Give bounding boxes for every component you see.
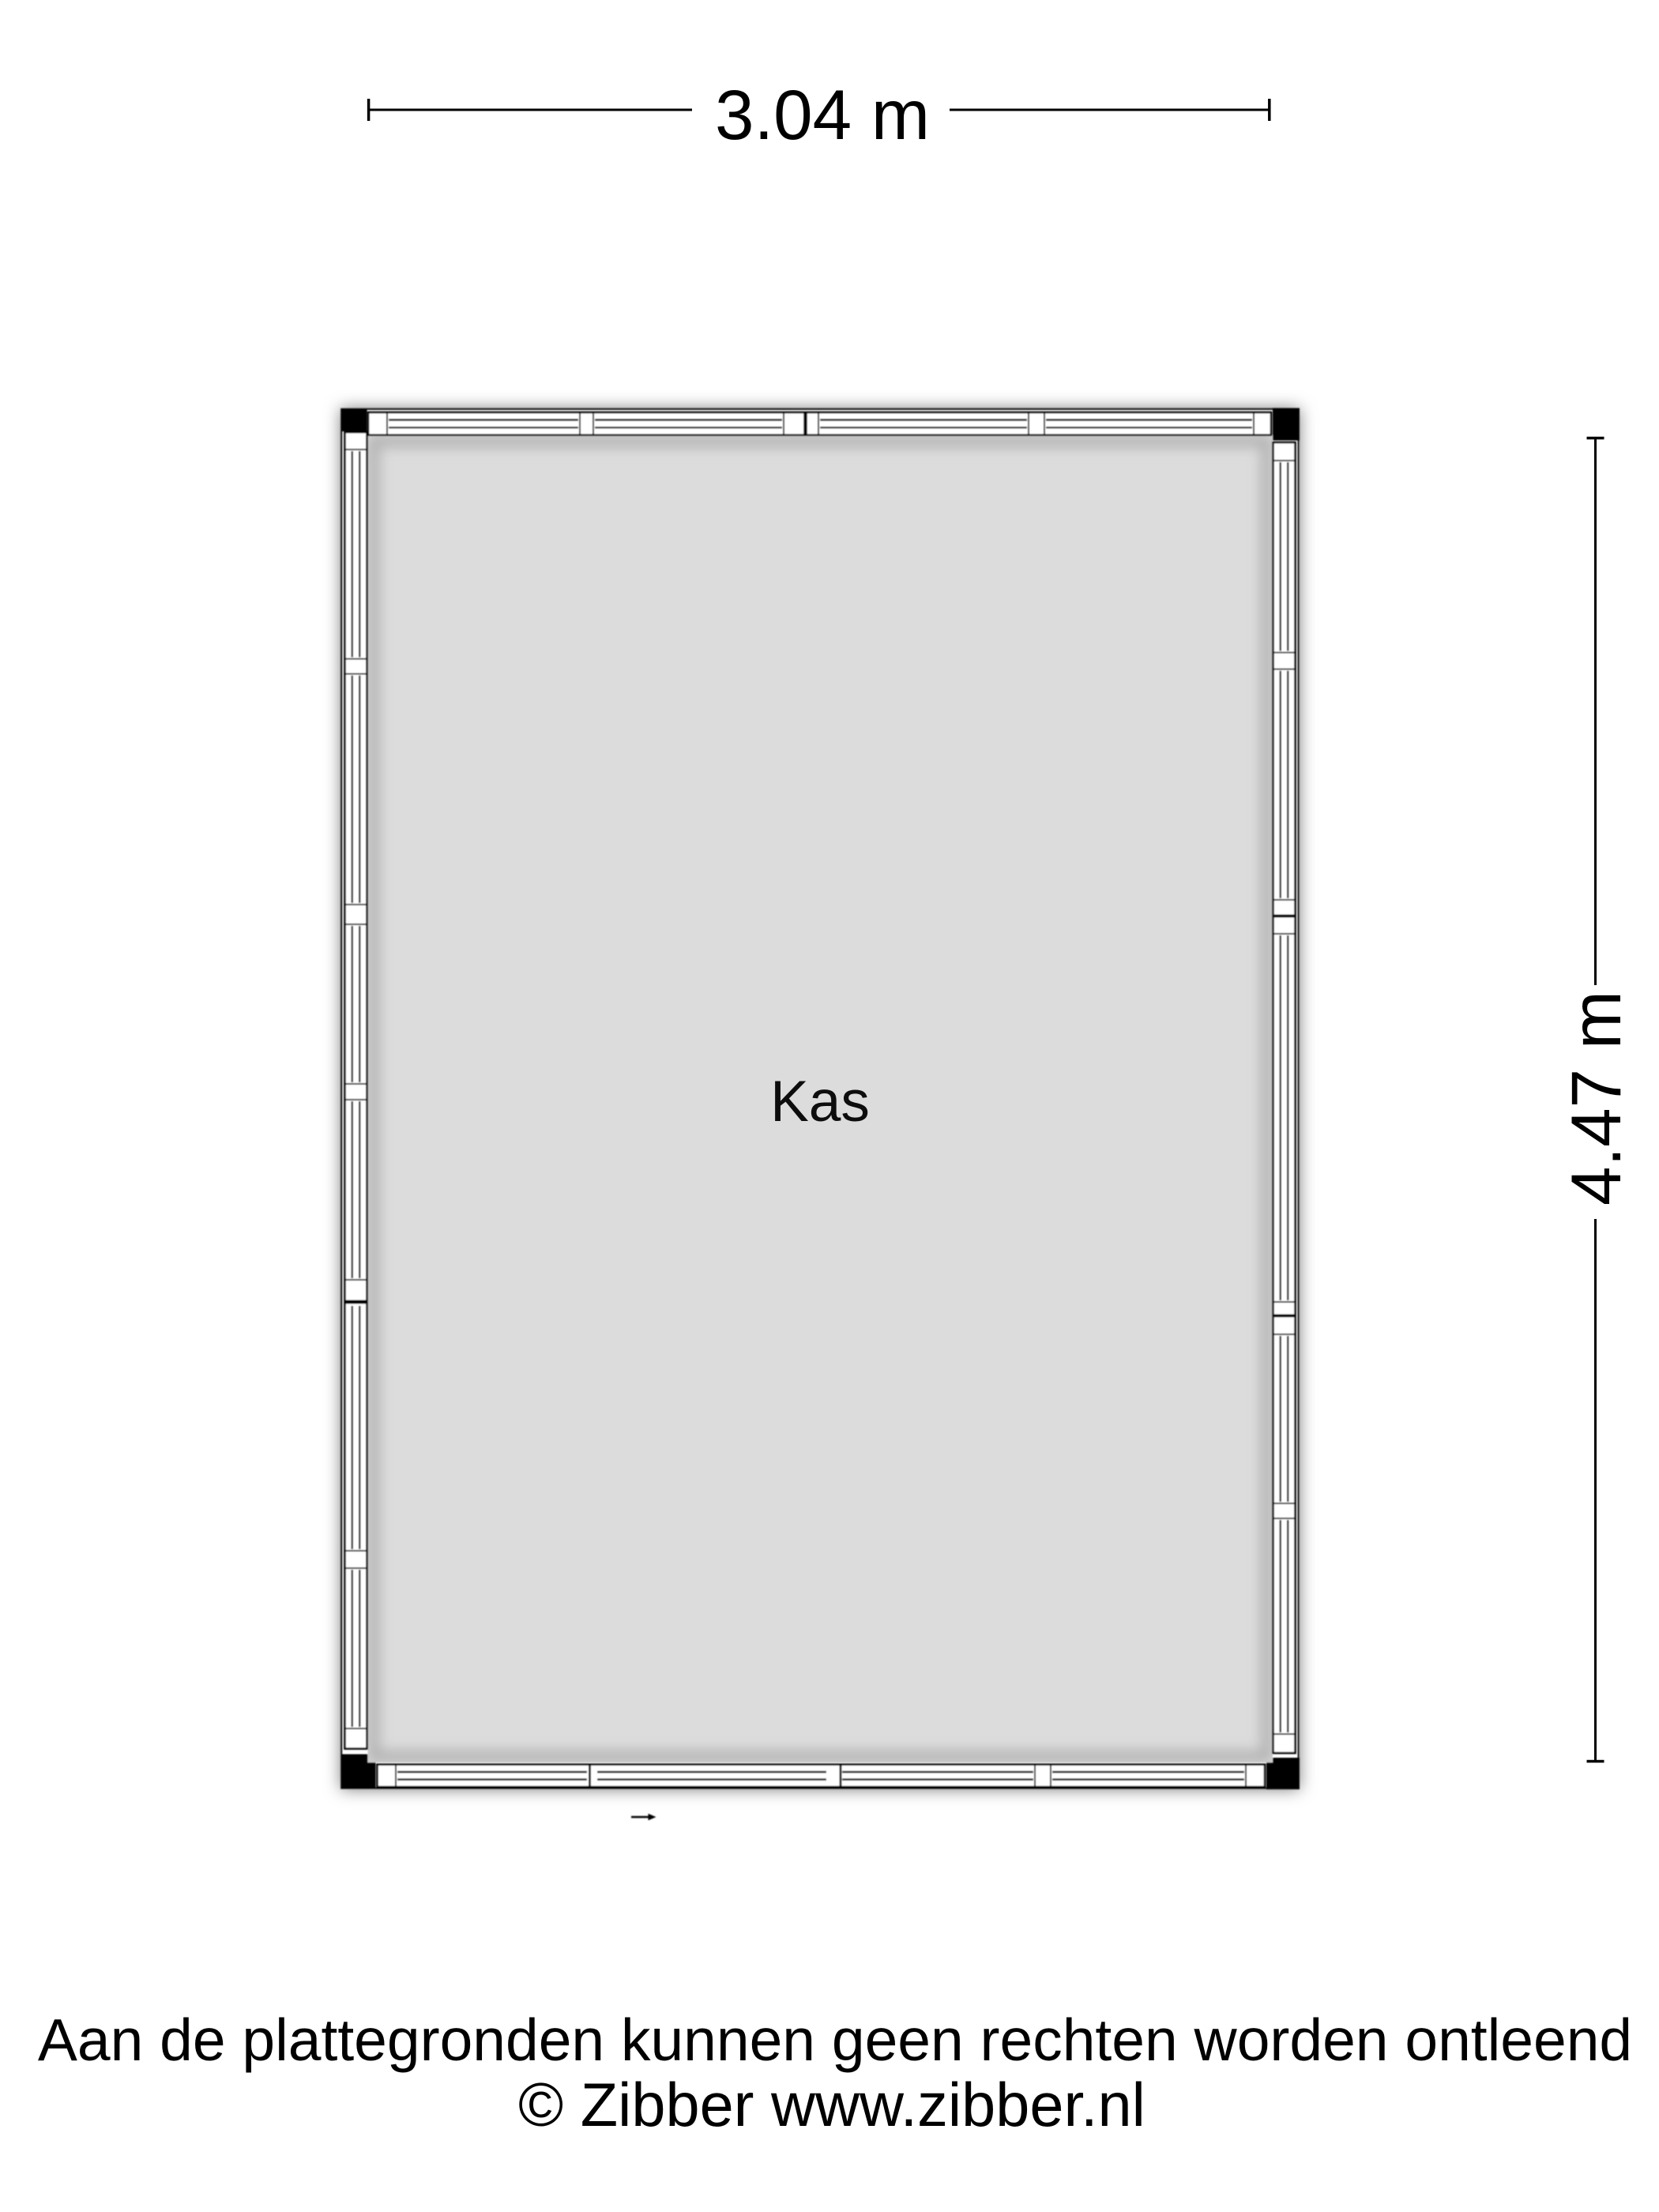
svg-text:Kas: Kas	[770, 1070, 870, 1134]
svg-text:© Zibber www.zibber.nl: © Zibber www.zibber.nl	[518, 2071, 1145, 2139]
svg-text:Aan de plattegronden kunnen ge: Aan de plattegronden kunnen geen rechten…	[38, 2007, 1632, 2073]
svg-text:4.47 m: 4.47 m	[1556, 991, 1635, 1206]
svg-text:3.04 m: 3.04 m	[715, 75, 930, 154]
